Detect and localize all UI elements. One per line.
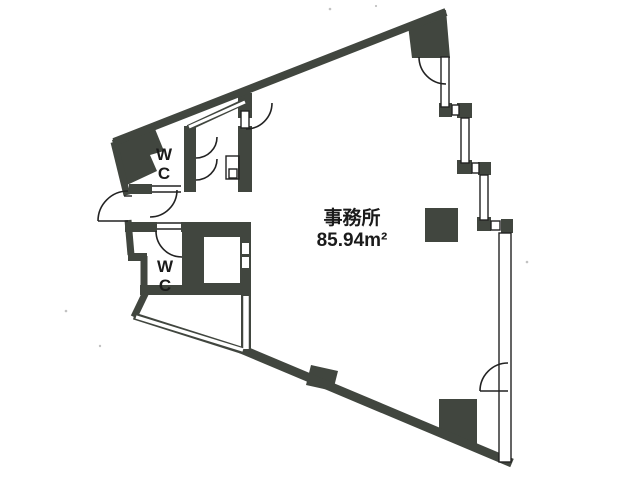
office-area: 85.94m² [317, 230, 388, 251]
step-block-4 [478, 162, 491, 175]
wc-upper-label-c: C [158, 164, 170, 183]
step-block-6 [501, 219, 513, 233]
office-label: 事務所 [323, 206, 380, 229]
storage-room-interior [204, 237, 240, 283]
floorplan-page: W C W C 事務所 85.94m² [0, 0, 640, 480]
storage-wall-notch-1 [242, 243, 249, 254]
floorplan-drawing: W C W C 事務所 85.94m² [0, 0, 640, 480]
window-step-gap-1 [452, 105, 459, 115]
pillar-interior [425, 208, 458, 242]
wall-stall-right [238, 126, 252, 192]
window-step-gap-3 [491, 221, 500, 230]
storage-wall-notch-2 [242, 257, 249, 268]
wc-upper-label-w: W [156, 145, 173, 164]
wall-wc-divider-lower [182, 227, 194, 292]
wc-lower-label-w: W [157, 257, 174, 276]
wall-left-mid [128, 220, 131, 255]
door-top-leaf [241, 111, 249, 128]
wall-wc-divider-upper [184, 126, 196, 192]
window-right-2 [461, 118, 469, 163]
window-step-gap-2 [472, 163, 479, 173]
wc-lower-label-c: C [159, 276, 171, 295]
window-right-long [499, 233, 511, 462]
window-right-3 [480, 175, 488, 220]
wall-wc-bottom [129, 184, 152, 194]
window-right-1 [441, 57, 449, 107]
